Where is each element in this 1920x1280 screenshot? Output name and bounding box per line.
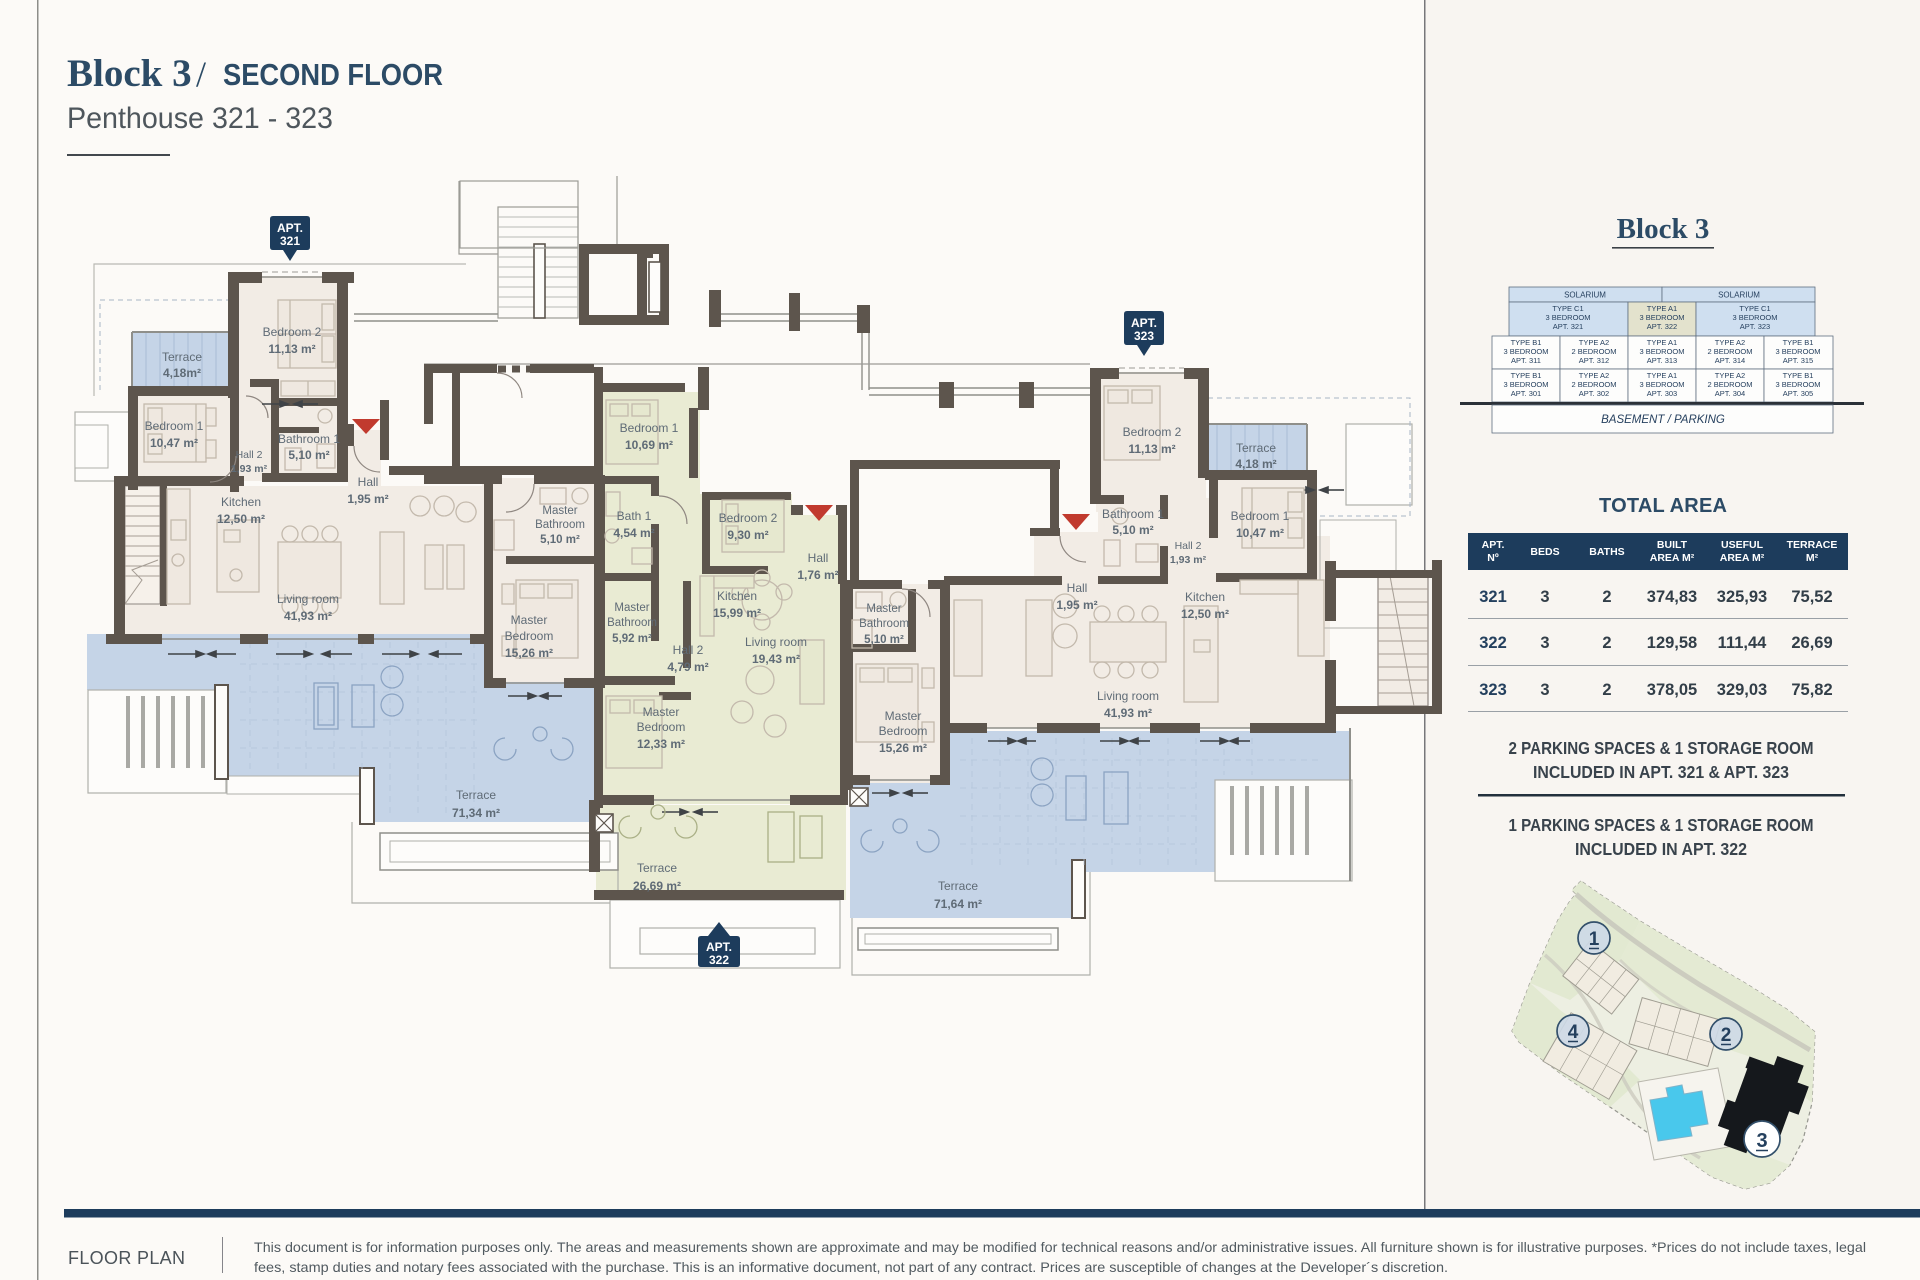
svg-text:APT. 304: APT. 304	[1715, 389, 1745, 398]
svg-text:Bedroom: Bedroom	[879, 724, 928, 738]
svg-text:TYPE A2: TYPE A2	[1579, 338, 1609, 347]
svg-text:Terrace: Terrace	[938, 879, 978, 893]
svg-text:TYPE A1: TYPE A1	[1647, 338, 1677, 347]
svg-text:15,26 m²: 15,26 m²	[505, 646, 553, 660]
svg-text:Nº: Nº	[1487, 552, 1499, 564]
svg-text:Kitchen: Kitchen	[717, 589, 757, 603]
svg-text:Bedroom 2: Bedroom 2	[1123, 425, 1182, 439]
svg-text:3 BEDROOM: 3 BEDROOM	[1545, 313, 1590, 322]
svg-text:4,54 m²: 4,54 m²	[613, 526, 654, 540]
svg-text:26,69: 26,69	[1791, 634, 1832, 652]
svg-text:AREA M²: AREA M²	[1720, 552, 1765, 564]
svg-text:4: 4	[1568, 1022, 1579, 1043]
svg-text:BUILT: BUILT	[1657, 539, 1688, 551]
svg-text:3 BEDROOM: 3 BEDROOM	[1775, 380, 1820, 389]
svg-text:TYPE A2: TYPE A2	[1715, 371, 1745, 380]
svg-text:2 BEDROOM: 2 BEDROOM	[1571, 347, 1616, 356]
svg-text:10,69 m²: 10,69 m²	[625, 438, 673, 452]
svg-text:Living room: Living room	[277, 592, 339, 606]
svg-text:TYPE A1: TYPE A1	[1647, 304, 1677, 313]
svg-text:SOLARIUM: SOLARIUM	[1564, 291, 1606, 300]
svg-text:TYPE B1: TYPE B1	[1783, 371, 1814, 380]
svg-text:Bath 1: Bath 1	[617, 509, 652, 523]
svg-text:1 PARKING SPACES & 1 STORAGE R: 1 PARKING SPACES & 1 STORAGE ROOM	[1509, 815, 1814, 835]
svg-text:71,34 m²: 71,34 m²	[452, 806, 500, 820]
svg-text:TYPE C1: TYPE C1	[1739, 304, 1770, 313]
svg-text:111,44: 111,44	[1718, 634, 1767, 652]
svg-text:71,64 m²: 71,64 m²	[934, 897, 982, 911]
svg-text:1,95 m²: 1,95 m²	[347, 492, 388, 506]
svg-text:Master: Master	[614, 602, 649, 614]
svg-text:3 BEDROOM: 3 BEDROOM	[1732, 313, 1777, 322]
svg-text:329,03: 329,03	[1717, 681, 1767, 699]
svg-text:5,10 m²: 5,10 m²	[1112, 523, 1153, 537]
svg-text:12,50 m²: 12,50 m²	[217, 512, 265, 526]
svg-text:321: 321	[1479, 588, 1507, 606]
svg-text:15,99 m²: 15,99 m²	[713, 606, 761, 620]
svg-text:5,10 m²: 5,10 m²	[864, 634, 904, 646]
svg-text:Living room: Living room	[745, 635, 807, 649]
svg-text:Block 3: Block 3	[67, 52, 192, 95]
svg-text:3: 3	[1540, 588, 1549, 606]
svg-text:SECOND FLOOR: SECOND FLOOR	[223, 57, 443, 92]
svg-text:APT. 322: APT. 322	[1647, 322, 1677, 331]
svg-text:3 BEDROOM: 3 BEDROOM	[1775, 347, 1820, 356]
svg-text:TYPE B1: TYPE B1	[1783, 338, 1814, 347]
svg-text:Terrace: Terrace	[1236, 441, 1276, 455]
svg-text:323: 323	[1134, 329, 1154, 343]
svg-text:M²: M²	[1806, 552, 1819, 564]
svg-text:Terrace: Terrace	[637, 861, 677, 875]
svg-text:INCLUDED IN APT. 321 & APT. 32: INCLUDED IN APT. 321 & APT. 323	[1533, 762, 1789, 782]
svg-text:Master: Master	[511, 613, 548, 627]
svg-text:APT. 311: APT. 311	[1511, 356, 1541, 365]
svg-text:1,93 m²: 1,93 m²	[1170, 554, 1207, 566]
svg-text:3: 3	[1756, 1130, 1767, 1152]
svg-text:Block 3: Block 3	[1617, 213, 1710, 245]
svg-text:1: 1	[1589, 929, 1600, 950]
svg-text:BASEMENT / PARKING: BASEMENT / PARKING	[1601, 414, 1725, 426]
svg-text:4,79 m²: 4,79 m²	[667, 660, 708, 674]
svg-text:APT.: APT.	[277, 221, 303, 235]
svg-text:12,50 m²: 12,50 m²	[1181, 607, 1229, 621]
svg-text:TYPE B1: TYPE B1	[1511, 338, 1542, 347]
svg-text:INCLUDED IN APT. 322: INCLUDED IN APT. 322	[1575, 839, 1747, 859]
svg-text:Master: Master	[866, 603, 901, 615]
svg-text:APT. 302: APT. 302	[1579, 389, 1609, 398]
svg-text:3 BEDROOM: 3 BEDROOM	[1639, 380, 1684, 389]
svg-text:BATHS: BATHS	[1589, 546, 1624, 558]
svg-text:41,93 m²: 41,93 m²	[284, 609, 332, 623]
svg-text:BEDS: BEDS	[1530, 546, 1559, 558]
svg-text:Bedroom 1: Bedroom 1	[145, 419, 204, 433]
svg-text:5,10 m²: 5,10 m²	[288, 448, 329, 462]
svg-text:1,95 m²: 1,95 m²	[1056, 598, 1097, 612]
svg-text:10,47 m²: 10,47 m²	[150, 436, 198, 450]
svg-text:1,93 m²: 1,93 m²	[231, 463, 268, 475]
svg-text:12,33 m²: 12,33 m²	[637, 737, 685, 751]
svg-text:Bathroom 1: Bathroom 1	[278, 432, 340, 446]
svg-text:2 PARKING SPACES & 1 STORAGE R: 2 PARKING SPACES & 1 STORAGE ROOM	[1509, 738, 1814, 758]
svg-text:TYPE A2: TYPE A2	[1579, 371, 1609, 380]
svg-text:3: 3	[1540, 634, 1549, 652]
svg-text:3 BEDROOM: 3 BEDROOM	[1503, 347, 1548, 356]
svg-text:321: 321	[280, 234, 300, 248]
svg-text:322: 322	[1479, 634, 1507, 652]
svg-text:TYPE A1: TYPE A1	[1647, 371, 1677, 380]
svg-text:Master: Master	[885, 709, 922, 723]
svg-text:Hall 2: Hall 2	[673, 643, 704, 657]
svg-text:Living room: Living room	[1097, 689, 1159, 703]
svg-text:4,18 m²: 4,18 m²	[1235, 457, 1276, 471]
svg-text:2: 2	[1602, 588, 1611, 606]
svg-text:374,83: 374,83	[1647, 588, 1697, 606]
svg-text:APT.: APT.	[1131, 316, 1157, 330]
svg-text:SOLARIUM: SOLARIUM	[1718, 291, 1760, 300]
svg-text:5,10 m²: 5,10 m²	[540, 534, 580, 546]
svg-text:APT. 305: APT. 305	[1783, 389, 1813, 398]
svg-text:325,93: 325,93	[1717, 588, 1767, 606]
svg-text:/: /	[196, 54, 206, 94]
svg-text:APT.: APT.	[1482, 539, 1505, 551]
svg-text:Master: Master	[643, 705, 680, 719]
svg-text:3 BEDROOM: 3 BEDROOM	[1639, 313, 1684, 322]
svg-text:Bedroom: Bedroom	[505, 629, 554, 643]
svg-text:9,30 m²: 9,30 m²	[727, 528, 768, 542]
svg-text:26,69 m²: 26,69 m²	[633, 879, 681, 893]
svg-text:11,13 m²: 11,13 m²	[1128, 442, 1175, 456]
svg-text:Hall: Hall	[1067, 581, 1088, 595]
svg-text:TERRACE: TERRACE	[1787, 539, 1838, 551]
svg-text:1,76 m²: 1,76 m²	[797, 568, 838, 582]
svg-text:75,52: 75,52	[1791, 588, 1832, 606]
svg-text:TOTAL AREA: TOTAL AREA	[1599, 495, 1727, 517]
svg-text:USEFUL: USEFUL	[1721, 539, 1764, 551]
svg-text:APT. 303: APT. 303	[1647, 389, 1677, 398]
svg-text:3 BEDROOM: 3 BEDROOM	[1639, 347, 1684, 356]
svg-text:41,93 m²: 41,93 m²	[1104, 706, 1152, 720]
svg-text:2 BEDROOM: 2 BEDROOM	[1707, 380, 1752, 389]
svg-text:Bedroom 2: Bedroom 2	[263, 325, 322, 339]
svg-text:323: 323	[1479, 681, 1507, 699]
svg-text:15,26 m²: 15,26 m²	[879, 741, 927, 755]
svg-text:TYPE A2: TYPE A2	[1715, 338, 1745, 347]
svg-text:TYPE C1: TYPE C1	[1552, 304, 1583, 313]
svg-text:4,18m²: 4,18m²	[163, 366, 201, 380]
svg-text:This document is for informati: This document is for information purpose…	[254, 1240, 1866, 1255]
svg-text:3: 3	[1540, 681, 1549, 699]
svg-text:Penthouse 321 - 323: Penthouse 321 - 323	[67, 102, 333, 135]
svg-text:Kitchen: Kitchen	[221, 495, 261, 509]
svg-text:19,43 m²: 19,43 m²	[752, 652, 800, 666]
svg-text:APT. 315: APT. 315	[1783, 356, 1813, 365]
svg-text:5,92 m²: 5,92 m²	[612, 633, 652, 645]
svg-text:129,58: 129,58	[1647, 634, 1697, 652]
svg-text:322: 322	[709, 953, 729, 967]
svg-text:Terrace: Terrace	[456, 788, 496, 802]
svg-text:2 BEDROOM: 2 BEDROOM	[1571, 380, 1616, 389]
svg-text:TYPE B1: TYPE B1	[1511, 371, 1542, 380]
svg-text:APT. 314: APT. 314	[1715, 356, 1745, 365]
svg-text:2: 2	[1721, 1025, 1732, 1046]
svg-text:APT.: APT.	[706, 940, 732, 954]
svg-text:2 BEDROOM: 2 BEDROOM	[1707, 347, 1752, 356]
svg-text:Hall 2: Hall 2	[1175, 540, 1202, 552]
svg-text:Bedroom 1: Bedroom 1	[620, 421, 679, 435]
svg-text:FLOOR PLAN: FLOOR PLAN	[68, 1248, 185, 1268]
svg-text:2: 2	[1602, 681, 1611, 699]
svg-text:11,13 m²: 11,13 m²	[268, 342, 315, 356]
svg-text:Bathroom: Bathroom	[607, 617, 657, 629]
svg-text:Bedroom 1: Bedroom 1	[1231, 509, 1290, 523]
svg-text:75,82: 75,82	[1791, 681, 1832, 699]
svg-text:AREA M²: AREA M²	[1650, 552, 1695, 564]
svg-text:Hall: Hall	[358, 475, 379, 489]
svg-text:Bathroom: Bathroom	[535, 519, 585, 531]
svg-text:APT. 312: APT. 312	[1579, 356, 1609, 365]
svg-text:Terrace: Terrace	[162, 350, 202, 364]
svg-text:2: 2	[1602, 634, 1611, 652]
svg-text:Bathroom: Bathroom	[859, 618, 909, 630]
svg-text:Hall 2: Hall 2	[236, 449, 263, 461]
svg-text:APT. 313: APT. 313	[1647, 356, 1677, 365]
svg-text:APT. 323: APT. 323	[1740, 322, 1770, 331]
svg-text:Master: Master	[542, 505, 577, 517]
svg-text:APT. 301: APT. 301	[1511, 389, 1541, 398]
svg-text:Bedroom: Bedroom	[637, 720, 686, 734]
svg-text:10,47 m²: 10,47 m²	[1236, 526, 1284, 540]
svg-text:Bathroom 1: Bathroom 1	[1102, 507, 1164, 521]
svg-text:APT. 321: APT. 321	[1553, 322, 1583, 331]
svg-text:Kitchen: Kitchen	[1185, 590, 1225, 604]
svg-text:Hall: Hall	[808, 551, 829, 565]
svg-text:378,05: 378,05	[1647, 681, 1697, 699]
svg-text:3 BEDROOM: 3 BEDROOM	[1503, 380, 1548, 389]
svg-text:fees, stamp duties and notary: fees, stamp duties and notary fees assoc…	[254, 1260, 1448, 1275]
svg-text:Bedroom 2: Bedroom 2	[719, 511, 778, 525]
